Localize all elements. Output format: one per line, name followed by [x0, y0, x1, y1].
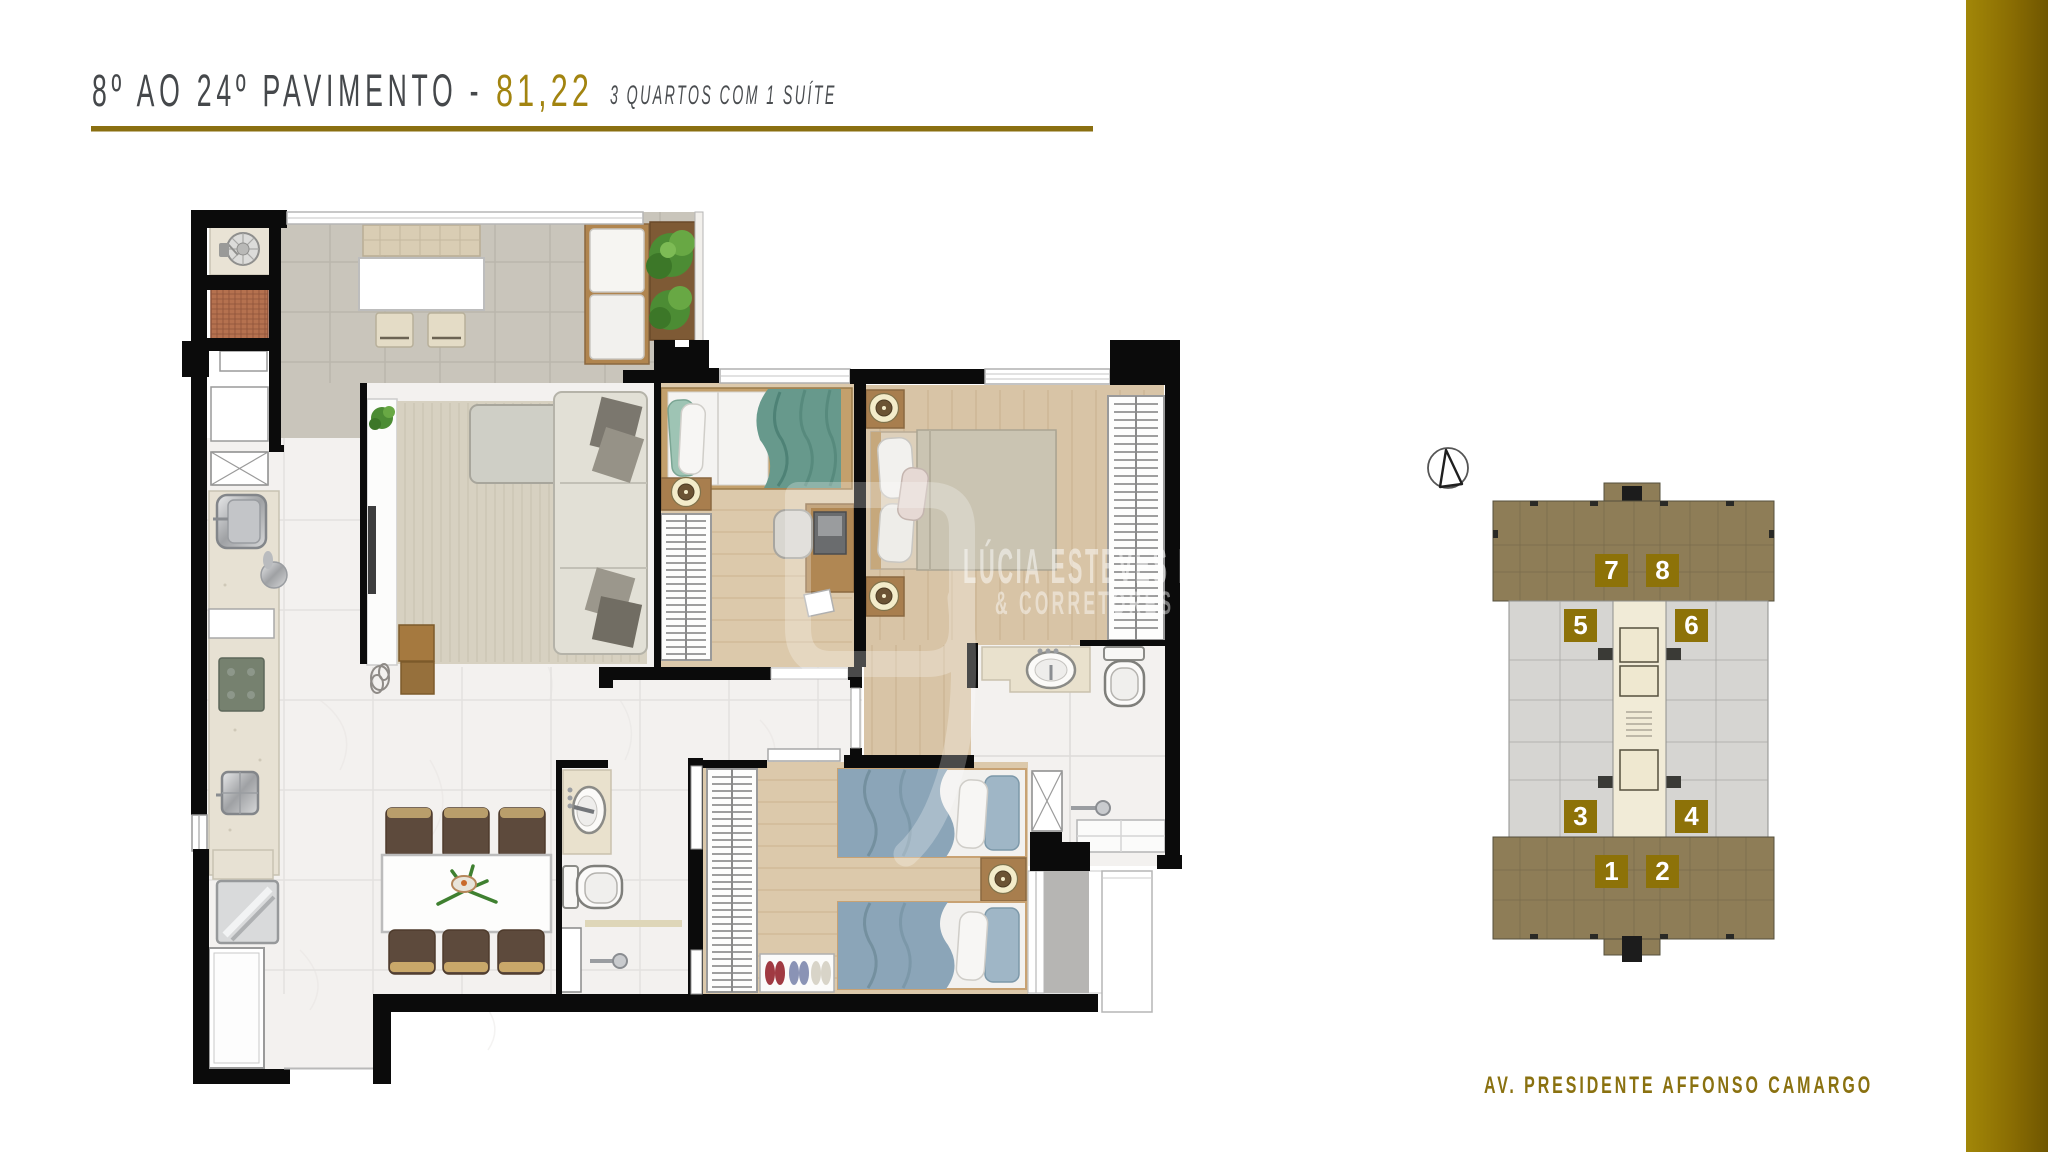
svg-text:1: 1	[1604, 856, 1618, 886]
svg-text:6: 6	[1684, 610, 1698, 640]
svg-text:AV. PRESIDENTE AFFONSO CAMARGO: AV. PRESIDENTE AFFONSO CAMARGO	[1484, 1073, 1873, 1099]
svg-text:5: 5	[1573, 610, 1587, 640]
svg-text:7: 7	[1604, 555, 1618, 585]
svg-text:8: 8	[1655, 555, 1669, 585]
svg-text:3 QUARTOS COM 1 SUÍTE: 3 QUARTOS COM 1 SUÍTE	[610, 79, 837, 110]
svg-text:3: 3	[1573, 801, 1587, 831]
svg-text:8º AO 24º PAVIMENTO -: 8º AO 24º PAVIMENTO -	[92, 66, 483, 116]
svg-text:2: 2	[1655, 856, 1669, 886]
svg-text:81,22: 81,22	[496, 66, 593, 116]
svg-text:4: 4	[1684, 801, 1699, 831]
svg-text:& CORRETORES ASSOC: & CORRETORES ASSOC	[995, 587, 1260, 622]
